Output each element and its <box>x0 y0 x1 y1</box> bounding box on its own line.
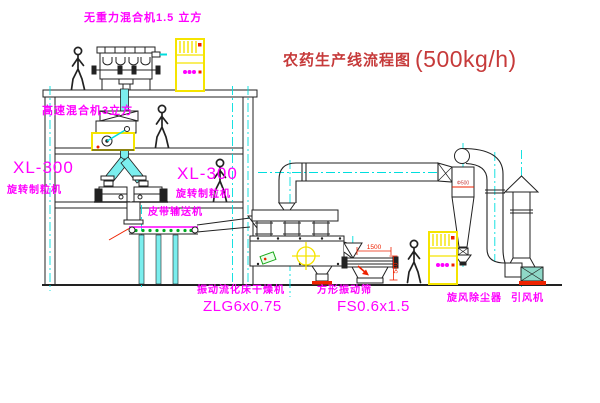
exhaust-duct <box>279 163 452 203</box>
title-capacity: (500kg/h) <box>415 46 517 73</box>
conveyor-leg <box>173 235 178 284</box>
label-granulator-left-model: XL-300 <box>13 159 74 176</box>
worker-roof <box>72 47 85 89</box>
process-flow-diagram: 1500 540 Φ500 <box>0 0 600 403</box>
worker-ground <box>408 240 421 282</box>
conveyor-leg <box>156 235 161 284</box>
dim-cyclone: Φ500 <box>457 181 470 187</box>
label-fan: 引风机 <box>511 294 544 304</box>
label-gravity-mixer: 无重力混合机1.5 立方 <box>84 13 202 24</box>
label-cyclone: 旋风除尘器 <box>447 294 502 304</box>
square-vibrating-sieve: 1500 540 <box>342 243 400 283</box>
label-belt-conveyor: 皮带输送机 <box>148 208 203 218</box>
dryer-inlet-cylinders <box>255 221 330 236</box>
label-sieve-model: FS0.6x1.5 <box>337 299 410 314</box>
title-text: 农药生产线流程图 <box>283 49 411 70</box>
label-high-speed-mixer: 高速混合机3立方 <box>42 106 133 117</box>
fluid-bed-dryer <box>248 203 356 285</box>
dim-sieve-length: 1500 <box>367 244 382 251</box>
worker-mid-floor <box>156 105 169 147</box>
label-granulator-center-model: XL-300 <box>177 165 238 182</box>
label-granulator-center-name: 旋转制粒机 <box>176 190 231 200</box>
fan-base <box>519 281 546 285</box>
wall-chute <box>197 218 250 232</box>
control-cabinet-2 <box>429 232 457 284</box>
gravity-free-mixer <box>92 47 167 90</box>
diagram-title: 农药生产线流程图 (500kg/h) <box>283 46 517 73</box>
exhaust-stack <box>505 176 538 267</box>
dim-sieve-height: 540 <box>393 262 400 273</box>
rotary-granulators <box>94 176 168 202</box>
label-granulator-left-name: 旋转制粒机 <box>7 186 62 196</box>
control-cabinet-1 <box>176 39 204 91</box>
conveyor-leg <box>139 235 144 284</box>
label-dryer-model: ZLG6x0.75 <box>203 299 282 314</box>
label-dryer-name: 振动流化床干燥机 <box>197 286 285 296</box>
label-sieve-name: 方形振动筛 <box>317 286 372 296</box>
vibrator-base <box>312 281 332 285</box>
